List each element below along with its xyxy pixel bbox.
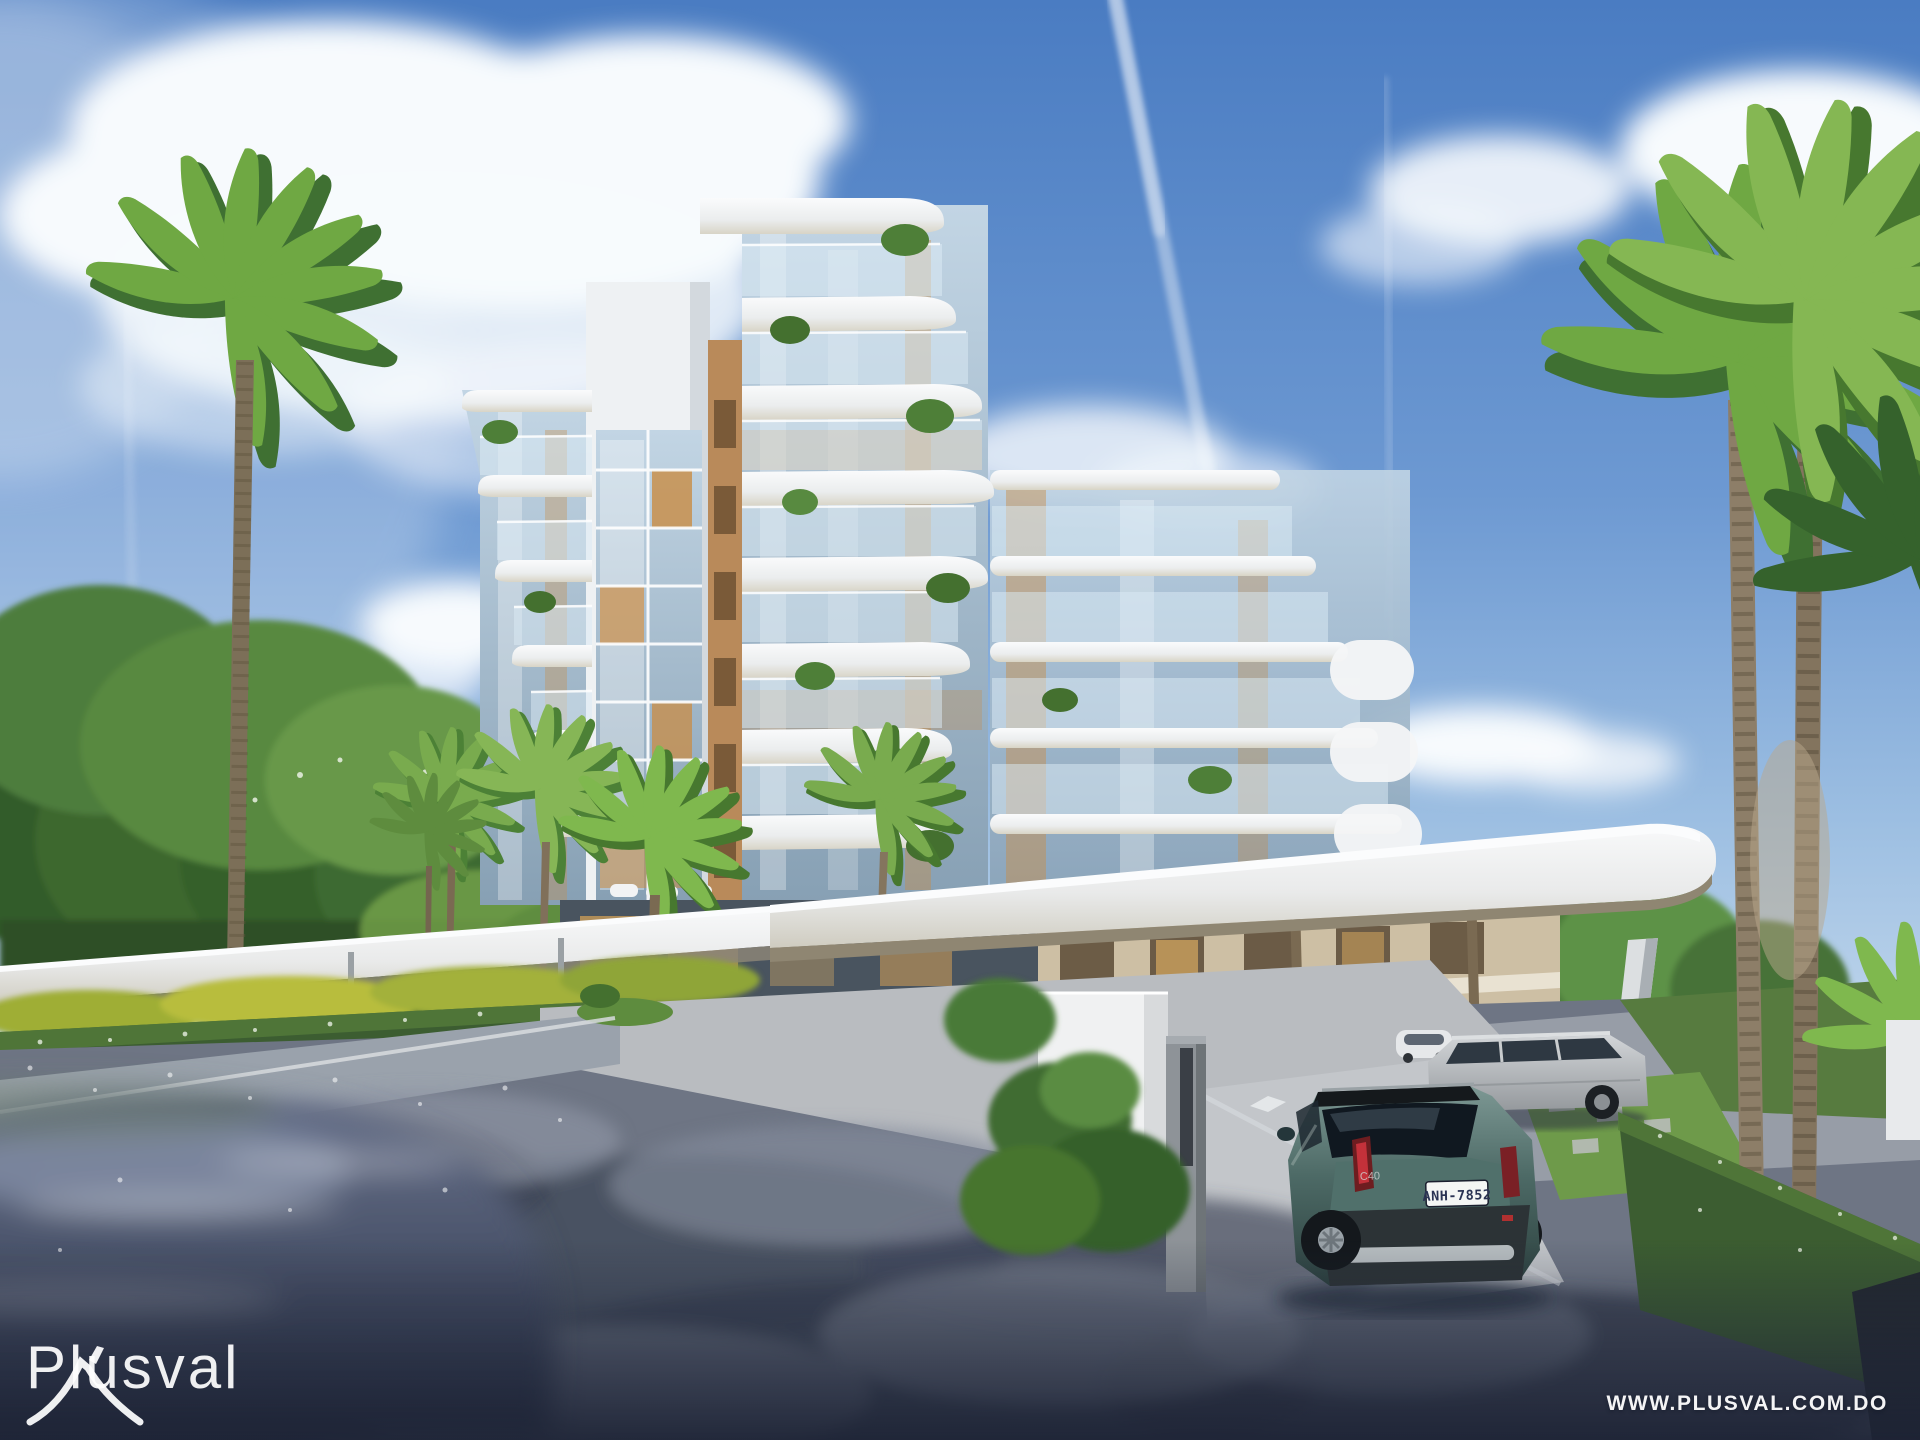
license-plate-number: ANH-7852 — [1422, 1187, 1491, 1205]
hedge-white-post — [1886, 1020, 1920, 1140]
scene-illustration: C40 ANH-7852 — [0, 0, 1920, 1440]
rendering-canvas: C40 ANH-7852 Plusval WWW.PLUSVAL.COM.DO — [0, 0, 1920, 1440]
license-plate: ANH-7852 — [1422, 1180, 1492, 1207]
watermark-logo: Plusval — [26, 1338, 240, 1402]
gate-intercom-panel — [1180, 1048, 1193, 1166]
watermark-url: WWW.PLUSVAL.COM.DO — [1606, 1392, 1888, 1416]
brand-name: Plusval — [26, 1338, 240, 1402]
suv-model-badge: C40 — [1360, 1170, 1381, 1183]
building-right-wing — [990, 470, 1422, 910]
